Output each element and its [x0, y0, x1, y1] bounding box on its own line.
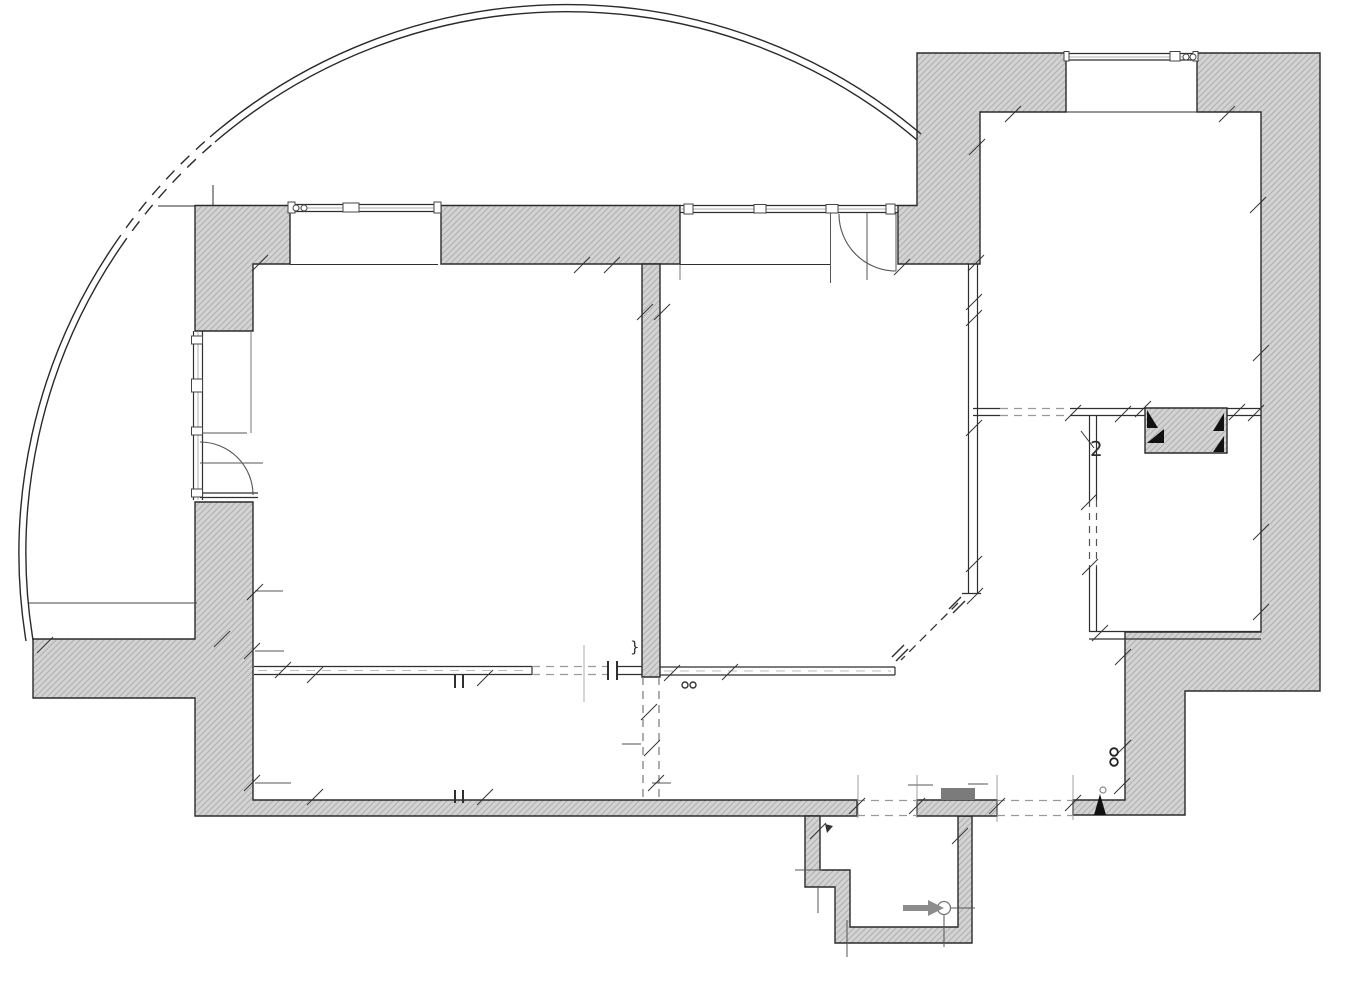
window-detail-circle — [1190, 54, 1196, 60]
wall-top-middle — [441, 206, 680, 265]
socket-symbol — [1110, 758, 1118, 766]
dimension-tick — [477, 670, 493, 686]
dimension-tick — [1065, 405, 1081, 421]
window-mullion — [343, 203, 359, 212]
texts-layer: 2} — [630, 437, 1103, 656]
wall-center-column — [642, 264, 660, 677]
floor-plan: 2} — [0, 0, 1353, 1000]
window-mullion — [192, 427, 203, 435]
wall-vestibule — [805, 816, 972, 943]
window-mullion — [192, 379, 203, 392]
socket-symbol — [1100, 787, 1106, 793]
dimension-tick — [644, 740, 660, 756]
window-cap — [1064, 52, 1069, 62]
small-arrow — [825, 824, 833, 833]
window-mullion — [684, 204, 693, 214]
window-mullion — [192, 489, 203, 497]
diagonal-opening-dashed — [901, 603, 958, 660]
window-mullion — [826, 205, 838, 214]
balcony-arc-inner — [215, 12, 917, 142]
window-mullion — [192, 336, 203, 344]
opening-number-label: 2 — [1090, 437, 1103, 461]
window-detail-circle — [1183, 54, 1189, 60]
window-detail-circle — [293, 205, 299, 211]
window-mullion — [1170, 52, 1180, 62]
socket-symbol — [690, 682, 696, 688]
wall-top-left-corner — [195, 206, 290, 332]
window-mullion — [754, 205, 766, 214]
appliance-dark-rect — [941, 788, 975, 800]
wall-left-lower — [33, 502, 857, 816]
arrow-shaft — [903, 905, 928, 911]
symbols-layer — [192, 52, 1225, 917]
socket-symbol — [1110, 748, 1118, 756]
wall-bottom-segment — [917, 800, 997, 816]
balcony-arc-outer — [19, 245, 114, 641]
balcony-arc-inner — [26, 248, 120, 640]
dimension-tick — [1229, 404, 1245, 420]
socket-symbol — [682, 682, 688, 688]
door-swing-arc — [200, 442, 253, 495]
brace-mark: } — [630, 638, 640, 656]
window-detail-circle — [301, 205, 307, 211]
window-mullion — [886, 204, 895, 214]
floor-plan-canvas: 2} — [0, 0, 1353, 1000]
wall-upper-right-left-band — [898, 53, 1066, 264]
dimension-tick — [967, 588, 983, 604]
window-mullion — [434, 202, 441, 213]
